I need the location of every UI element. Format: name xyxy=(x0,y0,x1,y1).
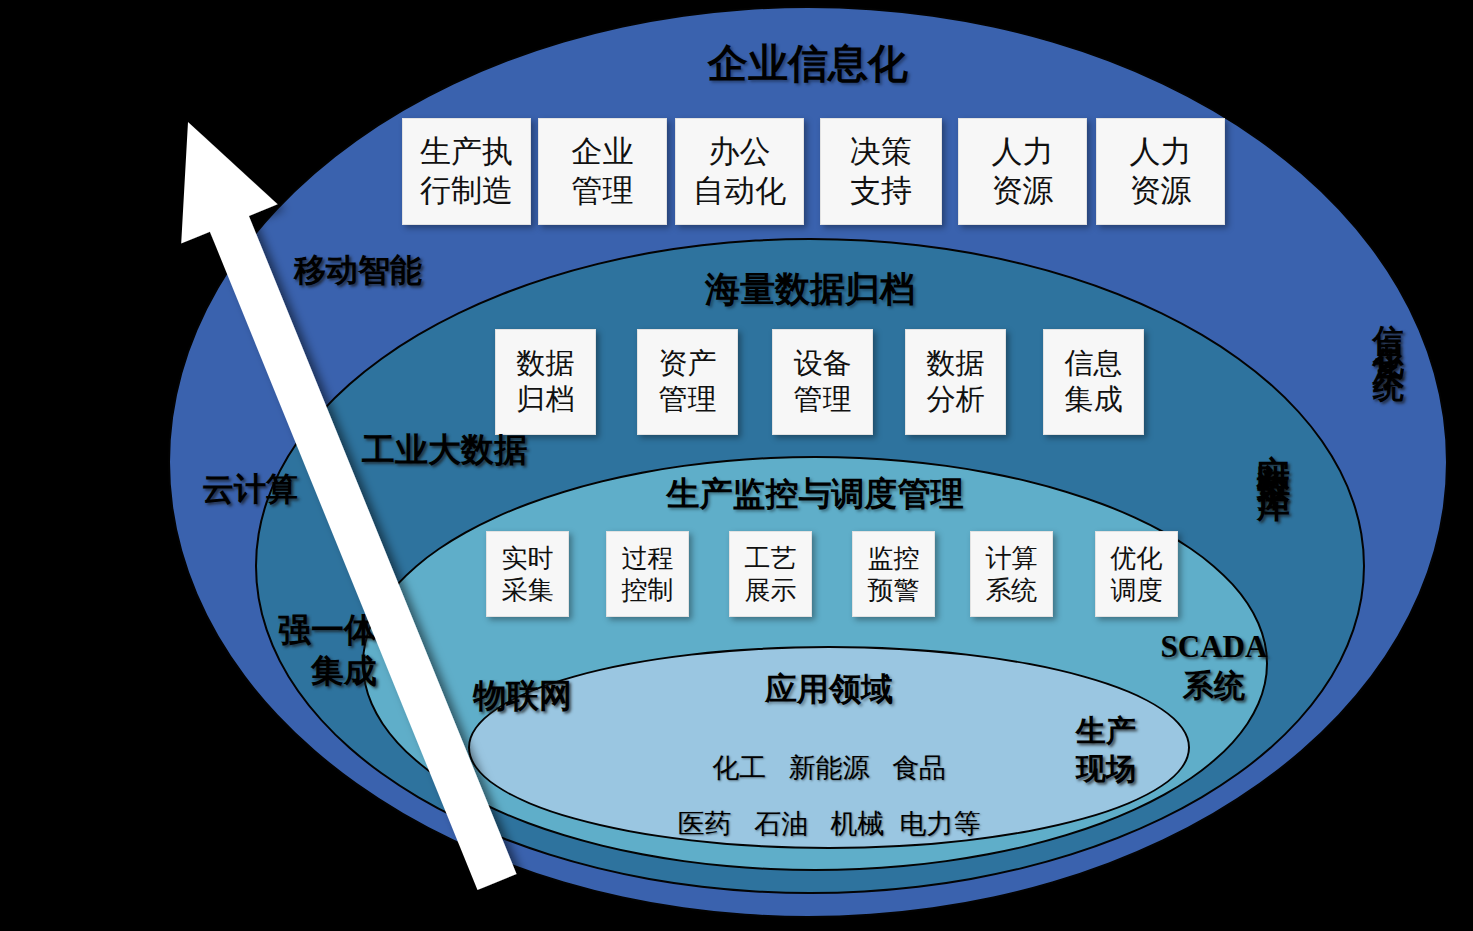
box-label-line2: 系统 xyxy=(986,574,1038,606)
title-production-monitoring: 生产监控与调度管理 xyxy=(362,472,1268,517)
label-scada-line1: SCADA xyxy=(1146,628,1282,667)
box-label-line2: 调度 xyxy=(1111,574,1163,606)
diagram-canvas: 企业信息化 海量数据归档 生产监控与调度管理 应用领域 生产执 行制造 企业 管… xyxy=(0,0,1473,931)
label-integration: 强一体化 集成 xyxy=(272,610,416,693)
box-label-line1: 企业 xyxy=(572,133,634,171)
box-label-line1: 设备 xyxy=(794,346,852,382)
box-mes: 生产执 行制造 xyxy=(402,118,531,225)
box-label-line1: 办公 xyxy=(709,133,771,171)
box-decision-support: 决策 支持 xyxy=(820,118,942,225)
box-realtime-collection: 实时 采集 xyxy=(486,531,569,617)
box-enterprise-management: 企业 管理 xyxy=(538,118,667,225)
box-human-resources-2: 人力 资源 xyxy=(1096,118,1225,225)
label-scada-system: SCADA 系统 xyxy=(1146,628,1282,706)
box-label-line2: 管理 xyxy=(659,382,717,418)
box-label-line2: 分析 xyxy=(927,382,985,418)
box-label-line2: 采集 xyxy=(502,574,554,606)
label-industrial-big-data: 工业大数据 xyxy=(362,430,527,471)
box-label-line1: 生产执 xyxy=(420,133,513,171)
box-label-line2: 管理 xyxy=(572,172,634,210)
box-label-line1: 人力 xyxy=(992,133,1054,171)
box-human-resources-1: 人力 资源 xyxy=(958,118,1087,225)
label-realtime-database: 实时数据库 xyxy=(1252,428,1293,468)
box-label-line2: 预警 xyxy=(868,574,920,606)
box-label-line2: 资源 xyxy=(1130,172,1192,210)
box-process-control: 过程 控制 xyxy=(606,531,689,617)
box-computing-system: 计算 系统 xyxy=(970,531,1053,617)
box-optimization-scheduling: 优化 调度 xyxy=(1095,531,1178,617)
label-informatization-system: 信息化系统 xyxy=(1368,300,1407,355)
label-integration-line1: 强一体化 xyxy=(272,610,416,651)
box-monitoring-alert: 监控 预警 xyxy=(852,531,935,617)
box-label-line1: 监控 xyxy=(868,542,920,574)
label-production-site-line1: 生产 xyxy=(1062,712,1150,750)
box-data-archive: 数据 归档 xyxy=(495,329,596,435)
box-label-line1: 实时 xyxy=(502,542,554,574)
box-label-line1: 人力 xyxy=(1130,133,1192,171)
box-office-automation: 办公 自动化 xyxy=(675,118,804,225)
box-label-line1: 数据 xyxy=(517,346,575,382)
box-label-line1: 数据 xyxy=(927,346,985,382)
box-label-line2: 自动化 xyxy=(693,172,786,210)
box-label-line2: 控制 xyxy=(622,574,674,606)
box-label-line1: 资产 xyxy=(659,346,717,382)
box-label-line2: 支持 xyxy=(850,172,912,210)
box-information-integration: 信息 集成 xyxy=(1043,329,1144,435)
box-label-line2: 行制造 xyxy=(420,172,513,210)
box-label-line2: 集成 xyxy=(1065,382,1123,418)
box-label-line2: 资源 xyxy=(992,172,1054,210)
box-label-line1: 过程 xyxy=(622,542,674,574)
box-label-line1: 工艺 xyxy=(745,542,797,574)
box-label-line1: 优化 xyxy=(1111,542,1163,574)
box-process-display: 工艺 展示 xyxy=(729,531,812,617)
box-equipment-management: 设备 管理 xyxy=(772,329,873,435)
label-mobile-intelligence: 移动智能 xyxy=(294,250,422,290)
application-industries-line2: 医药 石油 机械 电力等 xyxy=(468,806,1190,842)
box-label-line2: 管理 xyxy=(794,382,852,418)
application-industries-line1: 化工 新能源 食品 xyxy=(468,750,1190,786)
box-label-line1: 决策 xyxy=(850,133,912,171)
box-data-analysis: 数据 分析 xyxy=(905,329,1006,435)
label-iot: 物联网 xyxy=(473,676,572,717)
box-asset-management: 资产 管理 xyxy=(637,329,738,435)
label-integration-line2: 集成 xyxy=(272,651,416,692)
title-enterprise: 企业信息化 xyxy=(168,36,1448,91)
label-cloud-computing: 云计算 xyxy=(202,469,298,509)
box-label-line2: 归档 xyxy=(517,382,575,418)
box-label-line1: 信息 xyxy=(1065,346,1123,382)
box-label-line2: 展示 xyxy=(745,574,797,606)
title-application: 应用领域 xyxy=(468,668,1190,712)
label-scada-line2: 系统 xyxy=(1146,667,1282,706)
box-label-line1: 计算 xyxy=(986,542,1038,574)
